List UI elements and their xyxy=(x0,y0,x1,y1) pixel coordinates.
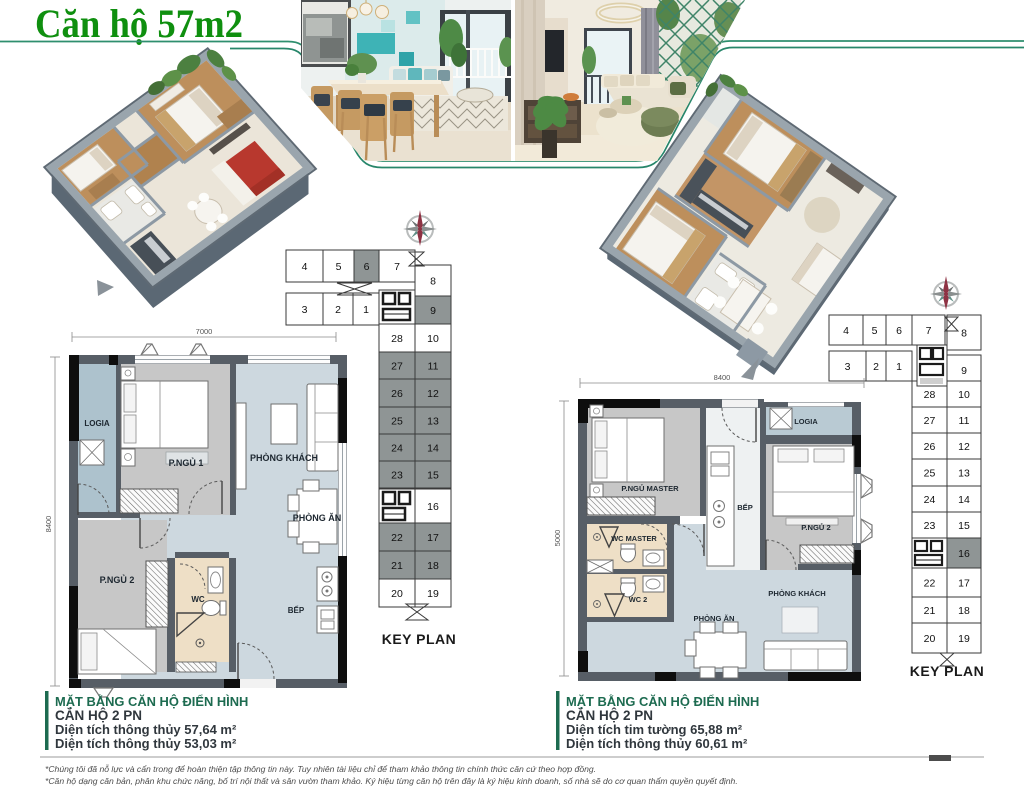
svg-text:6: 6 xyxy=(896,325,902,337)
svg-text:8400: 8400 xyxy=(44,516,53,533)
svg-text:8: 8 xyxy=(961,327,967,339)
svg-text:4: 4 xyxy=(843,325,849,337)
svg-text:CĂN HỘ 2 PN: CĂN HỘ 2 PN xyxy=(566,708,653,723)
svg-text:1: 1 xyxy=(363,304,369,316)
svg-text:PHÒNG ĂN: PHÒNG ĂN xyxy=(293,512,342,523)
svg-text:Diện tích thông thủy 53,03 m²: Diện tích thông thủy 53,03 m² xyxy=(55,736,237,751)
svg-text:P.NGỦ 2: P.NGỦ 2 xyxy=(801,523,830,532)
svg-text:22: 22 xyxy=(924,577,936,589)
svg-text:P.NGỦ MASTER: P.NGỦ MASTER xyxy=(621,484,679,493)
svg-text:12: 12 xyxy=(427,388,439,400)
svg-text:*Chúng tôi đã nỗ lực và cẩn tr: *Chúng tôi đã nỗ lực và cẩn trong để hoà… xyxy=(45,764,596,774)
svg-text:27: 27 xyxy=(924,415,936,427)
svg-text:25: 25 xyxy=(924,467,936,479)
svg-text:24: 24 xyxy=(391,442,403,454)
svg-text:19: 19 xyxy=(427,588,439,600)
svg-text:WC: WC xyxy=(191,595,205,604)
svg-text:Diện tích tim tường 65,88 m²: Diện tích tim tường 65,88 m² xyxy=(566,722,743,737)
svg-text:5: 5 xyxy=(872,325,878,337)
svg-text:WC 2: WC 2 xyxy=(629,595,647,604)
svg-text:7: 7 xyxy=(394,261,400,273)
svg-text:14: 14 xyxy=(958,494,970,506)
svg-text:Diện tích thông thủy 57,64 m²: Diện tích thông thủy 57,64 m² xyxy=(55,722,237,737)
svg-text:20: 20 xyxy=(391,588,403,600)
svg-text:28: 28 xyxy=(391,333,403,345)
svg-text:7: 7 xyxy=(926,325,932,337)
svg-text:21: 21 xyxy=(924,605,936,617)
svg-text:18: 18 xyxy=(958,605,970,617)
svg-text:17: 17 xyxy=(427,532,439,544)
svg-text:5: 5 xyxy=(336,261,342,273)
svg-text:17: 17 xyxy=(958,577,970,589)
svg-text:*Căn hộ dạng căn bản, phân khu: *Căn hộ dạng căn bản, phân khu chức năng… xyxy=(45,776,738,786)
svg-text:PHÒNG KHÁCH: PHÒNG KHÁCH xyxy=(768,589,825,598)
svg-text:PHÒNG KHÁCH: PHÒNG KHÁCH xyxy=(250,452,318,463)
svg-text:9: 9 xyxy=(961,365,967,377)
svg-text:16: 16 xyxy=(958,548,970,560)
svg-text:4: 4 xyxy=(302,261,308,273)
svg-text:LOGIA: LOGIA xyxy=(794,417,818,426)
svg-text:KEY PLAN: KEY PLAN xyxy=(382,631,457,647)
svg-text:2: 2 xyxy=(873,361,879,373)
svg-text:3: 3 xyxy=(845,361,851,373)
svg-text:7000: 7000 xyxy=(196,327,213,336)
svg-text:14: 14 xyxy=(427,442,439,454)
svg-text:Căn hộ 57m2: Căn hộ 57m2 xyxy=(35,1,243,46)
svg-text:6: 6 xyxy=(364,261,370,273)
svg-text:21: 21 xyxy=(391,560,403,572)
svg-text:15: 15 xyxy=(958,520,970,532)
svg-text:13: 13 xyxy=(427,415,439,427)
svg-text:3: 3 xyxy=(302,304,308,316)
svg-text:1: 1 xyxy=(896,361,902,373)
svg-text:9: 9 xyxy=(430,305,436,317)
svg-text:Diện tích thông thủy 60,61 m²: Diện tích thông thủy 60,61 m² xyxy=(566,736,748,751)
svg-text:10: 10 xyxy=(958,389,970,401)
svg-text:11: 11 xyxy=(959,415,970,427)
svg-text:18: 18 xyxy=(427,560,439,572)
svg-text:15: 15 xyxy=(427,469,439,481)
svg-text:10: 10 xyxy=(427,333,439,345)
svg-text:LOGIA: LOGIA xyxy=(84,419,110,428)
svg-text:WC MASTER: WC MASTER xyxy=(611,534,657,543)
svg-text:P.NGỦ 1: P.NGỦ 1 xyxy=(169,457,204,468)
svg-text:26: 26 xyxy=(924,441,936,453)
svg-text:13: 13 xyxy=(958,467,970,479)
svg-text:24: 24 xyxy=(924,494,936,506)
svg-text:12: 12 xyxy=(958,441,970,453)
svg-text:PHÒNG ĂN: PHÒNG ĂN xyxy=(694,614,735,623)
svg-text:27: 27 xyxy=(391,360,403,372)
svg-text:MẶT BẰNG CĂN HỘ ĐIỂN HÌNH: MẶT BẰNG CĂN HỘ ĐIỂN HÌNH xyxy=(566,694,759,709)
svg-text:KEY PLAN: KEY PLAN xyxy=(910,663,985,679)
svg-text:2: 2 xyxy=(335,304,341,316)
svg-text:19: 19 xyxy=(958,633,970,645)
svg-text:23: 23 xyxy=(924,520,936,532)
svg-text:8400: 8400 xyxy=(714,373,731,382)
svg-text:20: 20 xyxy=(924,633,936,645)
svg-text:P.NGỦ 2: P.NGỦ 2 xyxy=(100,574,135,585)
svg-text:MẶT BẰNG CĂN HỘ ĐIỂN HÌNH: MẶT BẰNG CĂN HỘ ĐIỂN HÌNH xyxy=(55,694,248,709)
svg-text:5000: 5000 xyxy=(553,530,562,547)
svg-text:28: 28 xyxy=(924,389,936,401)
svg-text:CĂN HỘ 2 PN: CĂN HỘ 2 PN xyxy=(55,708,142,723)
svg-text:BẾP: BẾP xyxy=(737,502,753,512)
svg-text:23: 23 xyxy=(391,469,403,481)
svg-text:11: 11 xyxy=(428,360,439,372)
svg-text:25: 25 xyxy=(391,415,403,427)
svg-text:16: 16 xyxy=(427,501,439,513)
svg-text:22: 22 xyxy=(391,532,403,544)
svg-text:26: 26 xyxy=(391,388,403,400)
svg-text:8: 8 xyxy=(430,275,436,287)
svg-text:BẾP: BẾP xyxy=(288,605,305,615)
